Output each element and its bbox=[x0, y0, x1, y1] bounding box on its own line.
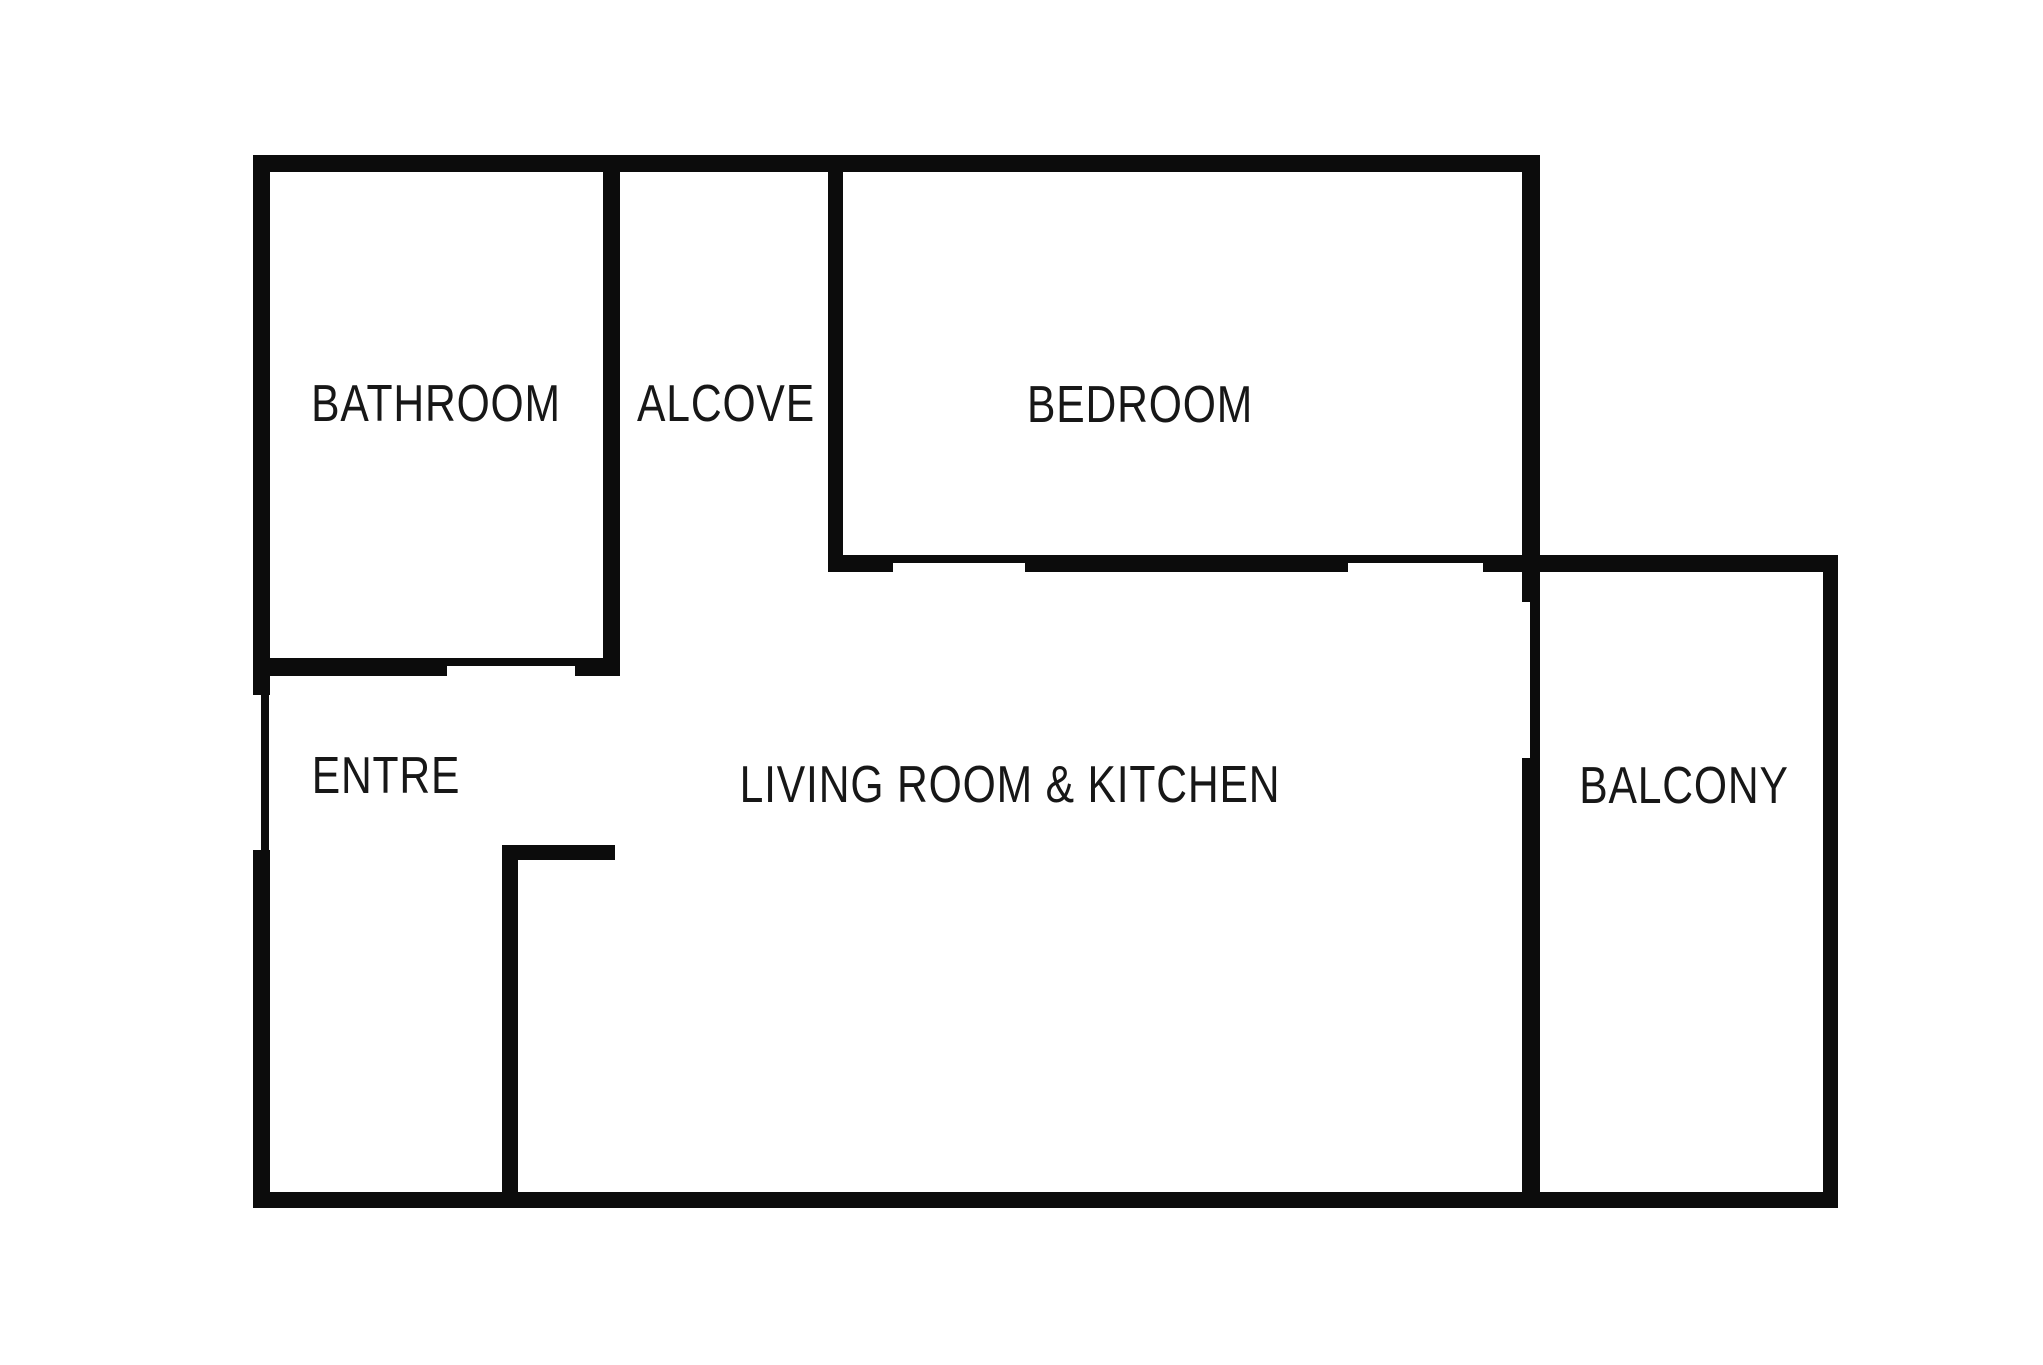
outer-left-wall-upper bbox=[253, 155, 270, 695]
balcony-west-opening bbox=[1530, 602, 1540, 758]
bedroom-south-wall-west bbox=[828, 555, 893, 572]
bathroom-alcove-wall bbox=[603, 172, 620, 676]
outer-bottom-wall bbox=[253, 1192, 1838, 1208]
room-label-alcove: ALCOVE bbox=[637, 374, 815, 434]
entrance-door-opening bbox=[261, 695, 269, 850]
bedroom-balcony-west-wall-upper bbox=[1522, 172, 1540, 602]
room-label-living-room-kitchen: LIVING ROOM & KITCHEN bbox=[740, 755, 1281, 815]
hall-partition-wall-vertical bbox=[502, 845, 518, 1192]
hall-partition-wall-horizontal bbox=[502, 845, 615, 860]
bathroom-south-wall-west bbox=[270, 658, 447, 676]
outer-top-wall bbox=[253, 155, 1540, 172]
room-label-balcony: BALCONY bbox=[1579, 756, 1789, 816]
room-label-bedroom: BEDROOM bbox=[1027, 375, 1253, 435]
bedroom-south-window-opening bbox=[1348, 555, 1483, 563]
room-label-bathroom: BATHROOM bbox=[311, 374, 561, 434]
bedroom-south-wall-mid bbox=[1025, 555, 1348, 572]
bathroom-door-opening bbox=[447, 658, 575, 666]
balcony-west-wall-lower bbox=[1522, 758, 1540, 1192]
floorplan-canvas: BATHROOMALCOVEBEDROOMENTRELIVING ROOM & … bbox=[0, 0, 2043, 1365]
bedroom-door-opening bbox=[893, 555, 1025, 563]
outer-left-wall-lower bbox=[253, 850, 270, 1208]
room-label-entre: ENTRE bbox=[312, 746, 461, 806]
balcony-east-wall bbox=[1823, 555, 1838, 1208]
alcove-bedroom-wall bbox=[828, 172, 843, 572]
